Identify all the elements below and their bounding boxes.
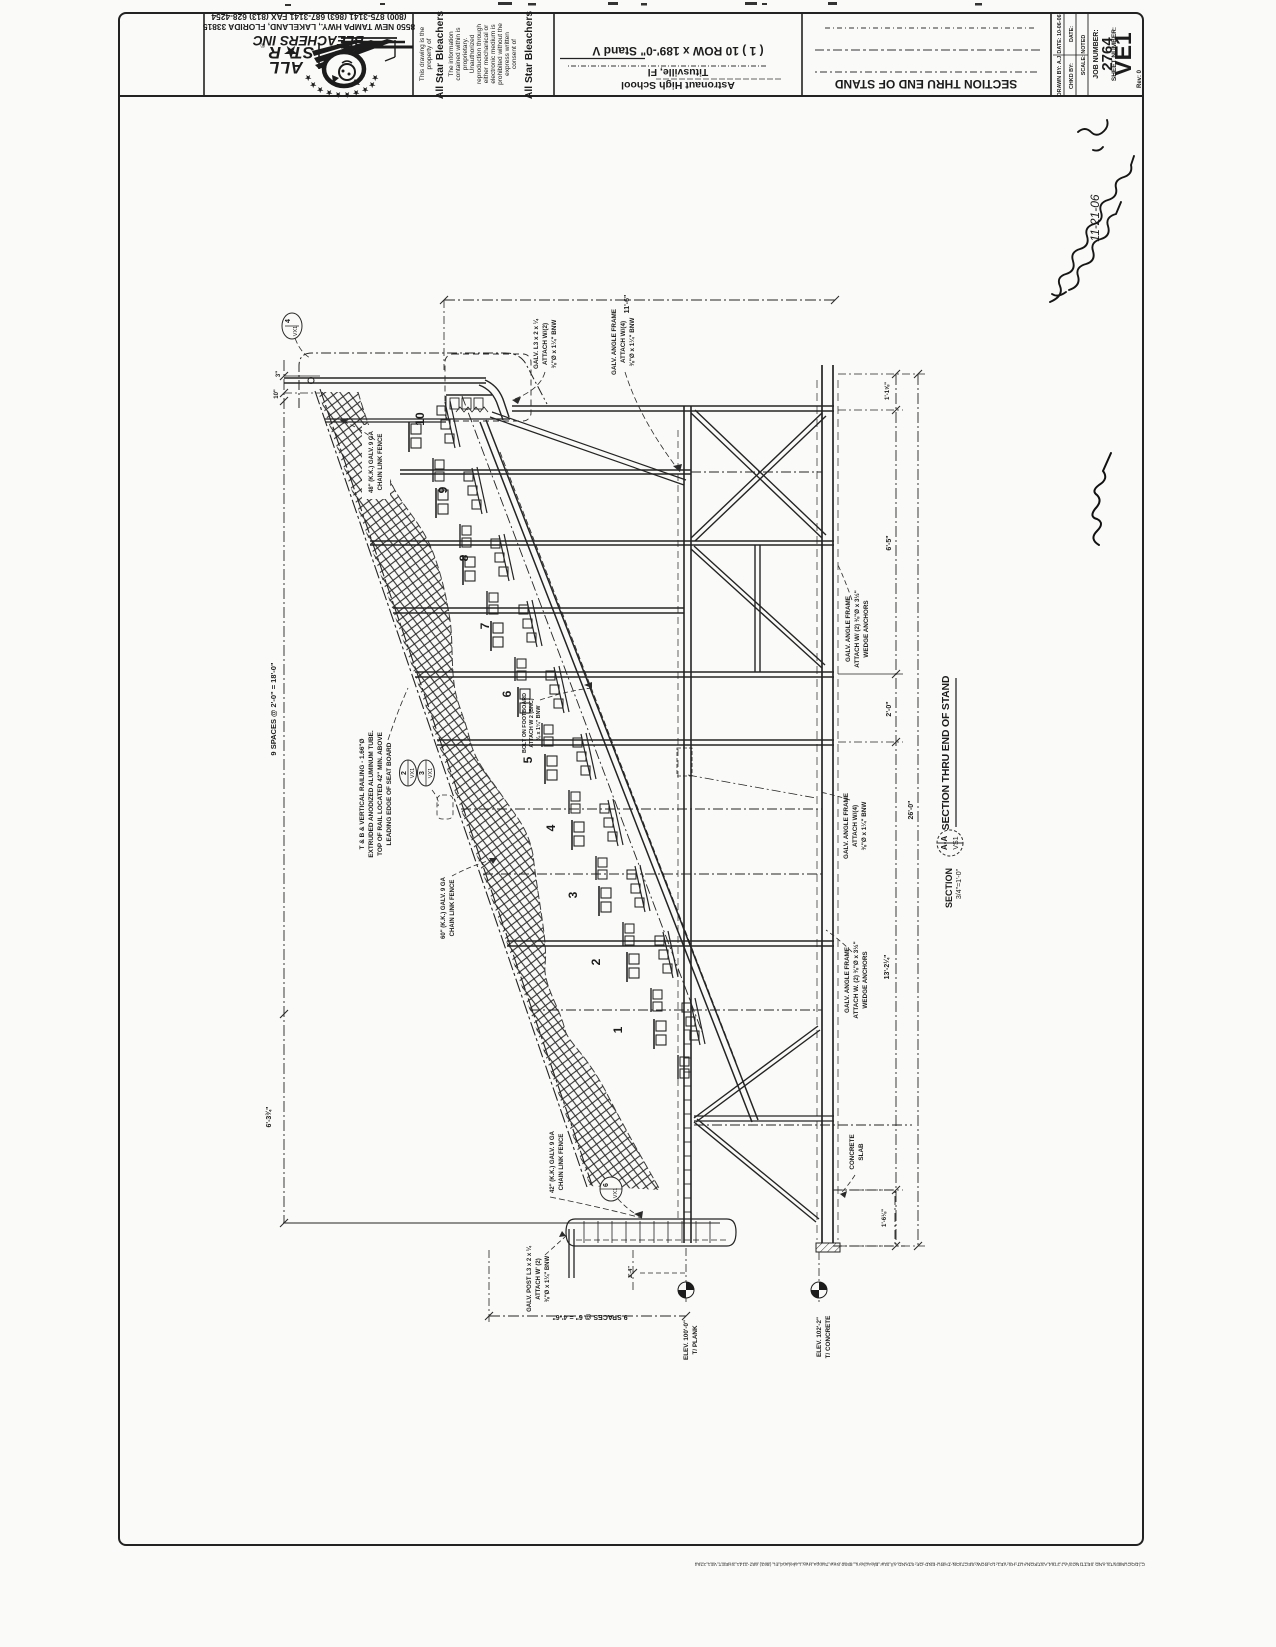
svg-text:2: 2 bbox=[401, 771, 408, 775]
svg-text:60" (K.K.) GALV. 9 GA: 60" (K.K.) GALV. 9 GA bbox=[441, 876, 447, 939]
svg-text:2'-4": 2'-4" bbox=[628, 1266, 634, 1278]
svg-text:ELEV. 100'-0": ELEV. 100'-0" bbox=[683, 1320, 690, 1360]
svg-text:WEDGE ANCHORS: WEDGE ANCHORS bbox=[862, 951, 869, 1008]
svg-text:A-A: A-A bbox=[940, 836, 949, 850]
svg-text:DATE:: DATE: bbox=[1069, 26, 1075, 42]
svg-text:BOLT ON FOOTBOARD: BOLT ON FOOTBOARD bbox=[522, 693, 528, 753]
svg-text:CHAIN LINK FENCE: CHAIN LINK FENCE bbox=[378, 434, 384, 491]
svg-text:5: 5 bbox=[521, 756, 535, 763]
svg-text:ATTACH W/ (2) ⅜"Ø x 3½": ATTACH W/ (2) ⅜"Ø x 3½" bbox=[853, 590, 861, 667]
svg-text:6: 6 bbox=[603, 1183, 610, 1187]
svg-text:1'-1⅝": 1'-1⅝" bbox=[885, 382, 891, 400]
svg-text:⅜"Ø x 1¼" BNW: ⅜"Ø x 1¼" BNW bbox=[860, 802, 868, 851]
svg-text:SECTION THRU END OF STAND: SECTION THRU END OF STAND bbox=[834, 77, 1017, 91]
svg-text:⅜"Ø x 1¼" BNW: ⅜"Ø x 1¼" BNW bbox=[544, 1255, 551, 1302]
svg-text:SECTION THRU END OF STAND: SECTION THRU END OF STAND bbox=[940, 675, 952, 830]
svg-text:10": 10" bbox=[274, 389, 280, 399]
svg-text:★: ★ bbox=[343, 90, 351, 100]
svg-text:VS1: VS1 bbox=[953, 836, 960, 849]
svg-text:GALV. ANGLE FRAME: GALV. ANGLE FRAME bbox=[844, 947, 851, 1013]
svg-text:VX1: VX1 bbox=[293, 326, 299, 336]
svg-text:42" (K.K.) GALV. 9 GA: 42" (K.K.) GALV. 9 GA bbox=[550, 1130, 556, 1193]
svg-text:13'-2¼": 13'-2¼" bbox=[883, 955, 891, 980]
svg-text:⅜ x 1¼" BNW: ⅜ x 1¼" BNW bbox=[535, 705, 542, 741]
svg-text:contained within is: contained within is bbox=[455, 27, 462, 81]
svg-text:⅜"Ø x 1¼" BNW: ⅜"Ø x 1¼" BNW bbox=[628, 318, 636, 367]
svg-text:SECTION: SECTION bbox=[944, 868, 954, 908]
svg-text:★: ★ bbox=[334, 90, 342, 100]
svg-text:2'-0": 2'-0" bbox=[886, 701, 893, 716]
svg-text:GALV. ANGLE FRAME: GALV. ANGLE FRAME bbox=[845, 596, 852, 662]
svg-text:ATTACH W. (2) ⅜"Ø x 3½": ATTACH W. (2) ⅜"Ø x 3½" bbox=[852, 941, 860, 1018]
svg-text:★: ★ bbox=[325, 88, 333, 98]
svg-text:1'-6⅛": 1'-6⅛" bbox=[882, 1209, 888, 1227]
svg-text:CHAIN LINK FENCE: CHAIN LINK FENCE bbox=[450, 880, 456, 937]
svg-text:3": 3" bbox=[276, 371, 282, 377]
svg-text:⅜"Ø x 1¼" BNW: ⅜"Ø x 1¼" BNW bbox=[550, 320, 558, 369]
svg-text:T/ PLANK: T/ PLANK bbox=[692, 1325, 699, 1354]
svg-text:★: ★ bbox=[352, 88, 360, 98]
svg-text:electronic medium is: electronic medium is bbox=[490, 24, 497, 84]
svg-text:All Star Bleachers: All Star Bleachers bbox=[435, 11, 446, 99]
svg-text:11-21-06: 11-21-06 bbox=[1088, 194, 1102, 241]
svg-text:10: 10 bbox=[413, 412, 427, 426]
svg-text:This drawing is the: This drawing is the bbox=[419, 27, 426, 82]
svg-text:VX1: VX1 bbox=[428, 768, 434, 778]
svg-text:CHAIN LINK FENCE: CHAIN LINK FENCE bbox=[559, 1134, 565, 1191]
svg-text:All Star Bleachers: All Star Bleachers bbox=[524, 11, 535, 99]
svg-text:SCALE: NOTED: SCALE: NOTED bbox=[1081, 35, 1087, 76]
svg-text:4: 4 bbox=[285, 319, 292, 323]
svg-text:Unauthorized: Unauthorized bbox=[469, 34, 476, 73]
svg-text:either mechanical or: either mechanical or bbox=[483, 24, 490, 83]
svg-text:Rev: 0: Rev: 0 bbox=[1137, 69, 1143, 88]
svg-text:1: 1 bbox=[611, 1026, 625, 1033]
svg-text:26'-0": 26'-0" bbox=[908, 801, 915, 820]
svg-text:( 1 ) 10 ROW x 189'-0" Stand V: ( 1 ) 10 ROW x 189'-0" Stand V bbox=[592, 44, 763, 58]
svg-text:DRAWN BY: A.J: DRAWN BY: A.J bbox=[1057, 56, 1063, 96]
svg-text:express written: express written bbox=[504, 32, 511, 76]
svg-text:GALV. L3 x 2 x ¼: GALV. L3 x 2 x ¼ bbox=[532, 318, 540, 369]
svg-text:3: 3 bbox=[419, 771, 426, 775]
svg-text:3: 3 bbox=[566, 891, 580, 898]
svg-text:prohibited without the: prohibited without the bbox=[497, 23, 504, 85]
svg-text:6'-3¾": 6'-3¾" bbox=[265, 1107, 273, 1128]
svg-text:8550 NEW TAMPA HWY., LAKELAND: 8550 NEW TAMPA HWY., LAKELAND, FLORIDA 3… bbox=[203, 22, 416, 32]
svg-text:11'-6": 11'-6" bbox=[624, 295, 631, 314]
svg-text:VX1: VX1 bbox=[613, 1188, 619, 1198]
svg-text:7: 7 bbox=[478, 622, 492, 629]
svg-text:CHKD BY:: CHKD BY: bbox=[1069, 63, 1075, 89]
svg-text:DATE: 10-06-06: DATE: 10-06-06 bbox=[1057, 14, 1063, 53]
svg-text:Astronaut High School: Astronaut High School bbox=[621, 79, 735, 91]
svg-text:ATTACH W/(4): ATTACH W/(4) bbox=[852, 805, 859, 847]
svg-text:property of: property of bbox=[426, 38, 433, 69]
svg-text:proprietary.: proprietary. bbox=[462, 38, 469, 71]
svg-text:GALV. ANGLE FRAME: GALV. ANGLE FRAME bbox=[611, 309, 618, 375]
svg-text:The information: The information bbox=[448, 31, 455, 77]
svg-text:CONCRETE: CONCRETE bbox=[849, 1134, 856, 1169]
svg-text:®: ® bbox=[260, 41, 265, 48]
svg-text:4: 4 bbox=[544, 824, 558, 831]
svg-text:LEADING EDGE OF SEAT BOARD: LEADING EDGE OF SEAT BOARD bbox=[386, 742, 393, 845]
svg-text:EXTRUDED ANODIZED ALUMINUM TUB: EXTRUDED ANODIZED ALUMINUM TUBE. bbox=[368, 730, 375, 858]
svg-text:GALV. ANGLE FRAME: GALV. ANGLE FRAME bbox=[843, 793, 850, 859]
svg-text:T/ CONCRETE: T/ CONCRETE bbox=[825, 1316, 832, 1359]
svg-text:6'-5": 6'-5" bbox=[886, 535, 893, 550]
svg-text:consent of: consent of bbox=[511, 39, 518, 69]
svg-text:9 SPACES @ 2'-0" = 18'-0": 9 SPACES @ 2'-0" = 18'-0" bbox=[269, 662, 278, 756]
svg-text:6: 6 bbox=[500, 690, 514, 697]
svg-text:★: ★ bbox=[304, 73, 312, 83]
svg-text:WEDGE ANCHORS: WEDGE ANCHORS bbox=[863, 600, 870, 657]
svg-text:VE1: VE1 bbox=[1110, 32, 1136, 76]
svg-text:9: 9 bbox=[436, 486, 450, 493]
svg-text:SLAB: SLAB bbox=[858, 1143, 865, 1161]
svg-text:★: ★ bbox=[361, 85, 369, 95]
svg-text:8: 8 bbox=[457, 554, 471, 561]
svg-text:ELEV. 102'-2": ELEV. 102'-2" bbox=[816, 1317, 823, 1357]
svg-text:2: 2 bbox=[589, 958, 603, 965]
svg-text:Titusville, Fl: Titusville, Fl bbox=[648, 66, 709, 78]
svg-text:ATTACH W' (2): ATTACH W' (2) bbox=[536, 1258, 542, 1300]
svg-text:(800) 875-3141 (863) 687-: (800) 875-3141 (863) 687-3141 FAX (813) … bbox=[211, 12, 406, 22]
svg-text:3/4"=1'-0": 3/4"=1'-0" bbox=[956, 868, 963, 899]
svg-text:BLEACHERS INC: BLEACHERS INC bbox=[253, 33, 364, 48]
svg-text:reproduction through: reproduction through bbox=[476, 24, 483, 84]
svg-text:ATTACH W/(4): ATTACH W/(4) bbox=[620, 321, 627, 363]
svg-text:ATTACH W 2 (BNC): ATTACH W 2 (BNC) bbox=[529, 698, 535, 747]
svg-text:ATTACH W/(2): ATTACH W/(2) bbox=[542, 323, 549, 365]
svg-text:VX1: VX1 bbox=[410, 768, 416, 778]
svg-text:9 SPACES @ 6" = 4'-6": 9 SPACES @ 6" = 4'-6" bbox=[552, 1313, 627, 1320]
svg-text:GALV. POST L3 x 2 x ¼: GALV. POST L3 x 2 x ¼ bbox=[526, 1245, 533, 1312]
svg-text:TOP OF RAIL LOCATED 42" MIN. A: TOP OF RAIL LOCATED 42" MIN. ABOVE bbox=[377, 731, 384, 855]
svg-text:T & B & VERTICAL RAILING - 1.6: T & B & VERTICAL RAILING - 1.66"Ø bbox=[359, 739, 366, 850]
